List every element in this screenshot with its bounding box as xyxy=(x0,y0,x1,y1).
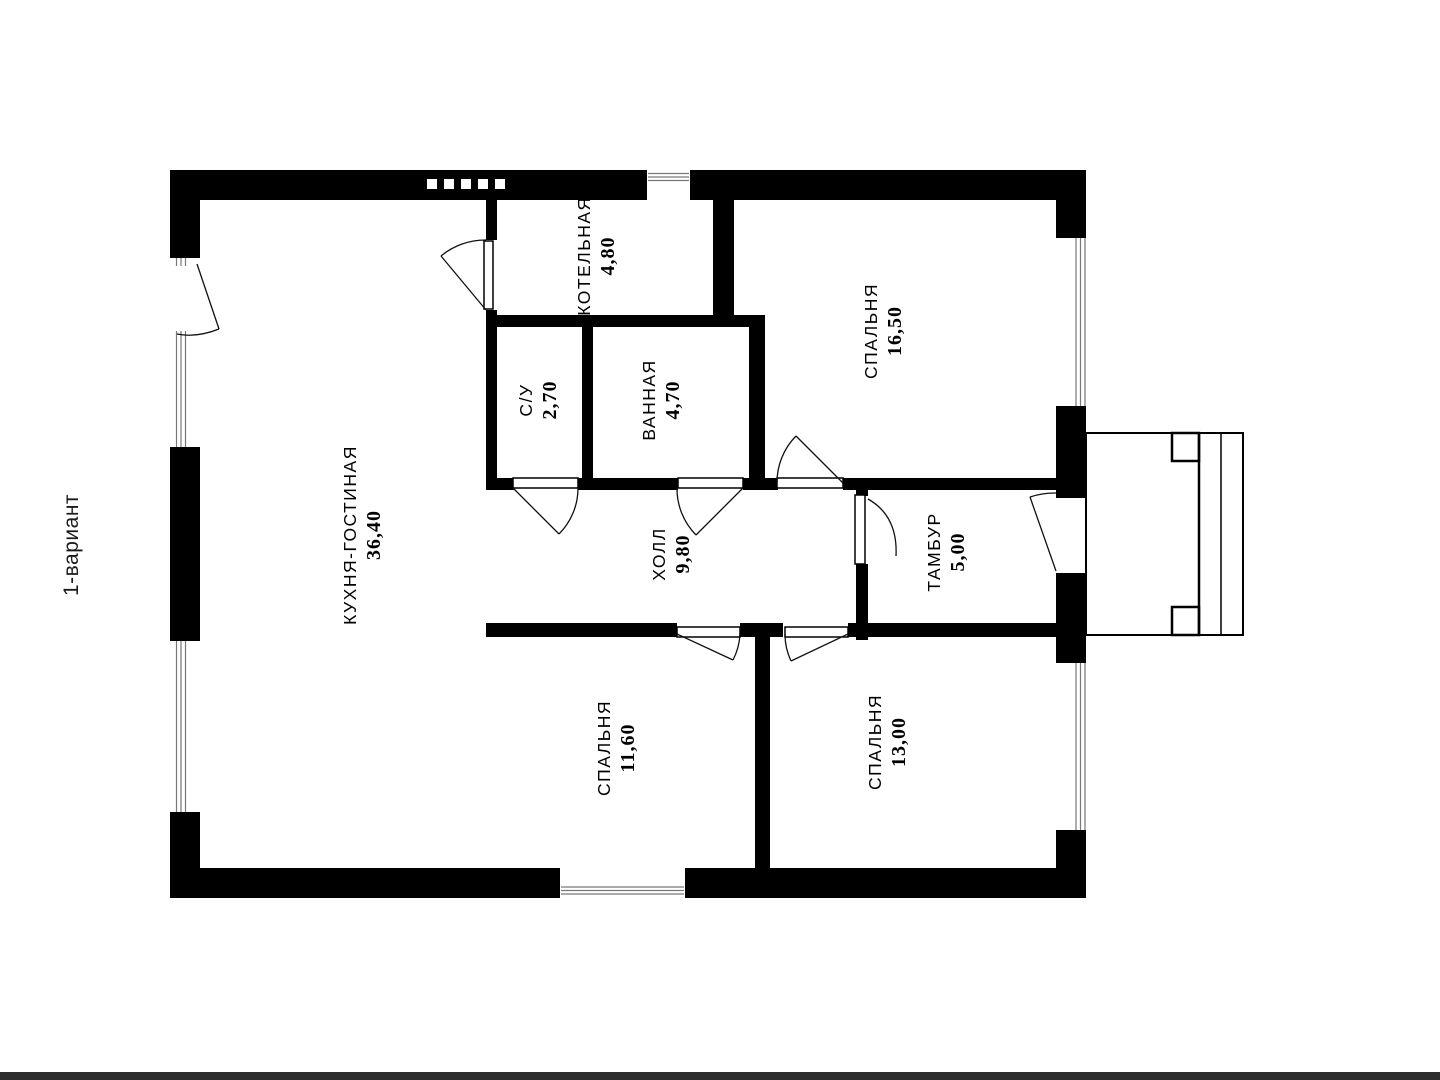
room-area: 4,70 xyxy=(662,359,684,440)
room-name: СПАЛЬНЯ xyxy=(595,700,614,796)
room-area: 2,70 xyxy=(539,381,561,420)
room-label-bathroom: ВАННАЯ 4,70 xyxy=(640,359,684,440)
floorplan-drawing xyxy=(0,0,1440,1080)
room-name: СПАЛЬНЯ xyxy=(866,694,885,790)
room-label-bedroom-2: СПАЛЬНЯ 11,60 xyxy=(595,700,639,796)
room-name: ТАМБУР xyxy=(925,512,944,591)
window-sash-arc xyxy=(177,329,219,335)
room-label-boiler: КОТЕЛЬНАЯ 4,80 xyxy=(575,196,619,315)
room-name: ХОЛЛ xyxy=(650,527,669,580)
room-name: КУХНЯ-ГОСТИНАЯ xyxy=(341,445,360,625)
room-label-bedroom-3: СПАЛЬНЯ 13,00 xyxy=(866,694,910,790)
entrance-porch xyxy=(1086,433,1243,635)
room-label-vestibule: ТАМБУР 5,00 xyxy=(925,512,969,591)
room-name: С/У xyxy=(517,381,536,420)
room-name: СПАЛЬНЯ xyxy=(862,283,881,379)
window-sash-leaf xyxy=(197,264,219,329)
variant-label: 1-вариант xyxy=(60,494,84,596)
room-name: ВАННАЯ xyxy=(640,359,659,440)
room-area: 9,80 xyxy=(672,527,694,580)
room-name: КОТЕЛЬНАЯ xyxy=(575,196,594,315)
room-label-hall: ХОЛЛ 9,80 xyxy=(650,527,694,580)
room-area: 13,00 xyxy=(888,694,910,790)
floorplan-page: 1-вариант КУХНЯ-ГОСТИНАЯ 36,40 КОТЕЛЬНАЯ… xyxy=(0,0,1440,1080)
room-area: 36,40 xyxy=(363,445,385,625)
room-area: 5,00 xyxy=(947,512,969,591)
doors xyxy=(441,240,1056,661)
room-area: 11,60 xyxy=(617,700,639,796)
room-area: 4,80 xyxy=(597,196,619,315)
bottom-bar xyxy=(0,1072,1440,1080)
room-label-kitchen-living: КУХНЯ-ГОСТИНАЯ 36,40 xyxy=(341,445,385,625)
room-label-wc: С/У 2,70 xyxy=(517,381,561,420)
interior-walls xyxy=(486,200,1056,898)
room-label-bedroom-1: СПАЛЬНЯ 16,50 xyxy=(862,283,906,379)
room-area: 16,50 xyxy=(884,283,906,379)
